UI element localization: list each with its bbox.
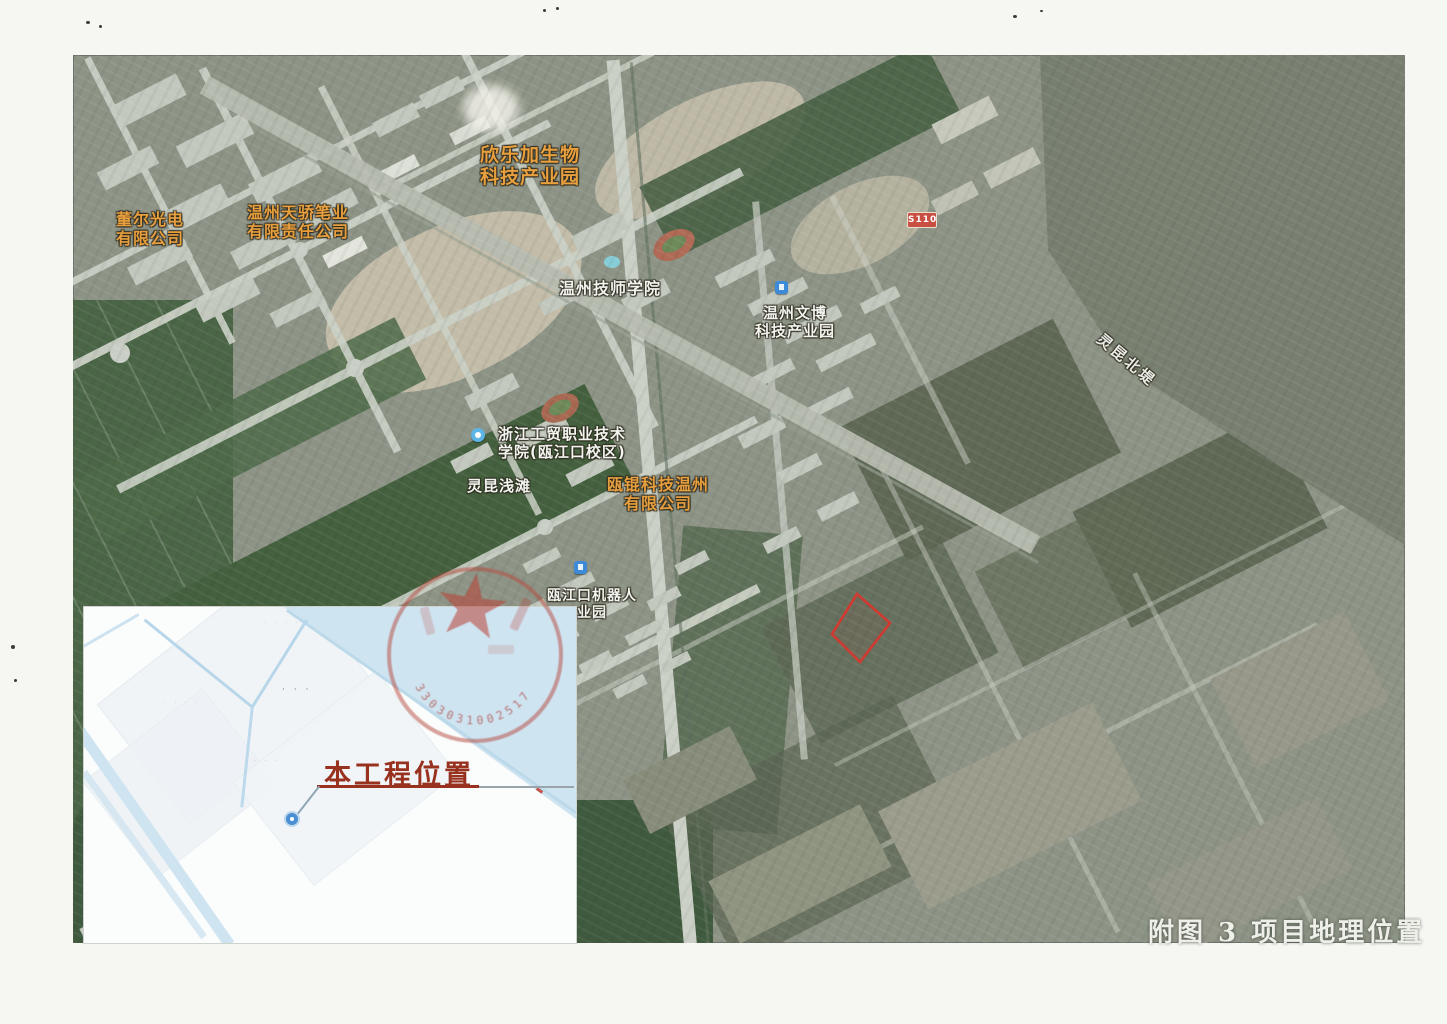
map-label-xinlejia: 欣乐加生物 科技产业园 xyxy=(480,144,580,189)
building-block xyxy=(931,180,979,215)
map-label-tianjiao: 温州天骄笔业 有限责任公司 xyxy=(247,204,349,242)
building-block xyxy=(878,703,1142,910)
building-block xyxy=(777,452,822,484)
map-label-gongmao: 浙江工贸职业技术 学院(瓯江口校区) xyxy=(498,426,626,461)
building-block xyxy=(816,491,859,522)
inset-underline-extension xyxy=(479,786,574,788)
label-line: 灵昆浅滩 xyxy=(467,478,531,496)
label-line: 有限责任公司 xyxy=(247,223,349,242)
red-seal-stamp: 3303031002517 xyxy=(368,545,588,765)
roundabout xyxy=(292,242,308,258)
inset-faint-text: · · · · · · xyxy=(264,619,321,627)
roundabout xyxy=(110,343,130,363)
label-line: 瓯锟科技温州 xyxy=(607,476,709,495)
label-line: 温州文博 xyxy=(755,305,835,323)
scan-speck xyxy=(1040,10,1043,12)
scan-speck xyxy=(86,21,90,24)
scan-speck xyxy=(1013,15,1017,18)
label-line: 有限公司 xyxy=(116,230,184,249)
building-block xyxy=(1210,611,1389,768)
building-block xyxy=(269,288,326,328)
inset-canal xyxy=(84,613,139,648)
label-line: 浙江工贸职业技术 xyxy=(498,426,626,444)
poi-circle-icon xyxy=(471,428,485,442)
map-label-wenbo: 温州文博 科技产业园 xyxy=(755,305,835,340)
project-boundary-polygon xyxy=(822,586,900,670)
poi-marker-icon xyxy=(775,281,788,294)
building-block xyxy=(983,147,1041,188)
label-line: 欣乐加生物 xyxy=(480,144,580,166)
building-block xyxy=(113,73,186,126)
seal-number-arc: 3303031002517 xyxy=(413,681,535,727)
route-shield-s110: S110 xyxy=(907,212,937,228)
inset-dots: · · · xyxy=(282,685,311,695)
scan-speck xyxy=(543,9,546,12)
marker-dot xyxy=(290,817,294,821)
inset-label-underline xyxy=(317,785,479,788)
svg-text:3303031002517: 3303031002517 xyxy=(413,681,535,727)
inset-faint-text: · · · · xyxy=(164,699,201,707)
poi-glyph xyxy=(779,284,784,290)
map-label-jishi: 温州技师学院 xyxy=(559,280,661,299)
campus-pond xyxy=(604,256,620,268)
scan-speck xyxy=(99,25,102,28)
roundabout xyxy=(346,359,364,377)
label-line: 学院(瓯江口校区) xyxy=(498,444,626,462)
poi-dot xyxy=(475,432,481,438)
figure-caption: 附图 3 项目地理位置 xyxy=(1148,912,1425,949)
bright-haze-spot xyxy=(463,85,519,131)
map-label-oukun: 瓯锟科技温州 有限公司 xyxy=(607,476,709,514)
scan-speck xyxy=(556,7,559,10)
inset-faint-text: · · · xyxy=(254,757,280,765)
roundabout xyxy=(537,519,553,535)
building-block xyxy=(419,75,465,108)
label-line: 有限公司 xyxy=(607,495,709,514)
label-line: 科技产业园 xyxy=(755,323,835,341)
scan-speck xyxy=(11,645,15,649)
label-line: 科技产业园 xyxy=(480,166,580,188)
building-block xyxy=(372,102,420,137)
label-line: 温州天骄笔业 xyxy=(247,204,349,223)
label-line: 温州技师学院 xyxy=(559,280,661,299)
building-block xyxy=(714,248,775,288)
map-label-dongr: 董尔光电 有限公司 xyxy=(116,211,184,249)
scanned-document-page: { "page": { "caption": "附图 3 项目地理位置" }, … xyxy=(0,0,1447,1024)
seal-star-icon xyxy=(434,569,511,641)
scan-speck xyxy=(14,679,17,682)
inset-site-marker xyxy=(284,811,300,827)
map-label-qiantan: 灵昆浅滩 xyxy=(467,478,531,496)
label-line: 董尔光电 xyxy=(116,211,184,230)
